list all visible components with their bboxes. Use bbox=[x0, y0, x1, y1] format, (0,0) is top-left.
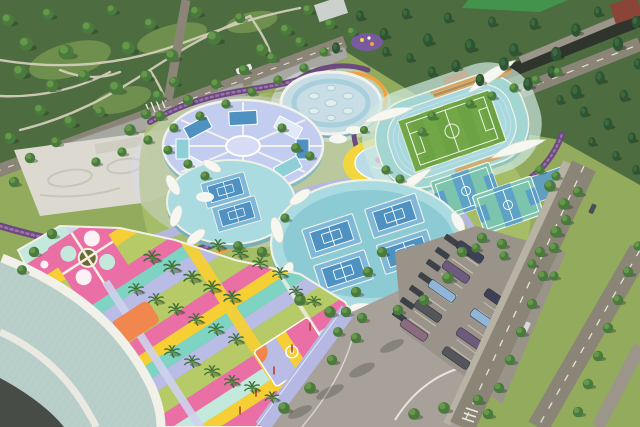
aerial-rendering bbox=[0, 0, 640, 427]
conifer-icon bbox=[632, 16, 640, 28]
pavilion-center bbox=[226, 136, 260, 156]
tent-canopy bbox=[196, 192, 214, 202]
tent-canopy bbox=[346, 126, 362, 134]
scene-svg bbox=[0, 0, 640, 427]
tent-canopy bbox=[329, 135, 347, 144]
